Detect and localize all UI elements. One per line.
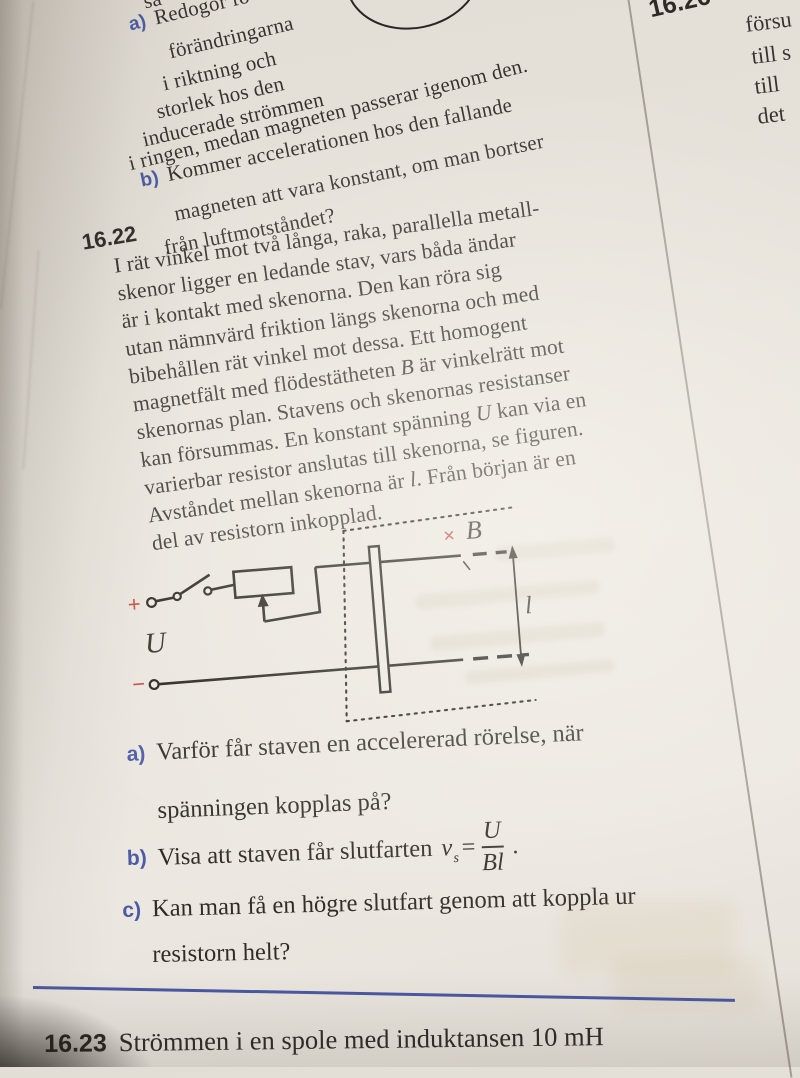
- adjacent-line-fragment: det: [756, 101, 786, 130]
- problem-16-23-number: 16.23: [44, 1029, 107, 1058]
- v-subscript: s: [453, 851, 459, 866]
- question-a-line-2: spänningen kopplas på?: [157, 788, 392, 825]
- paper-crease: [22, 250, 39, 470]
- terminal-circle: [149, 680, 158, 689]
- line-text: resistorn helt?: [152, 938, 291, 968]
- line-text: Visa att staven får slutfarten: [157, 835, 433, 872]
- textbook-page-photo: { "colors": {"accent_blue": "#4b5ba6", "…: [0, 0, 800, 1067]
- fragment-text: till: [753, 71, 781, 99]
- previous-figure-ring-fragment: [336, 0, 490, 41]
- adjacent-line-fragment: till: [753, 71, 781, 100]
- formula-fraction: U Bl: [481, 818, 505, 876]
- fragment-text: försu: [744, 6, 793, 36]
- item-b-label: b): [139, 167, 161, 191]
- minus-terminal-label: −: [131, 671, 146, 697]
- terminal-circle: [147, 598, 156, 607]
- fragment-text: till s: [750, 39, 792, 69]
- sentence-period: .: [512, 832, 519, 860]
- circuit-diagram: + − U × B l: [104, 467, 662, 750]
- field-cross-icon: ×: [442, 523, 456, 548]
- resistor-box: [233, 567, 293, 598]
- formula-velocity: vs: [441, 834, 458, 863]
- voltage-label: U: [144, 626, 169, 660]
- fragment-text: det: [756, 101, 786, 129]
- field-label: B: [465, 515, 483, 545]
- rail-tick-mark: [463, 561, 470, 570]
- line-text: spänningen kopplas på?: [157, 788, 392, 824]
- top-rail: [315, 556, 461, 568]
- question-b-label: b): [127, 846, 148, 871]
- item-a-label: a): [127, 11, 149, 35]
- plus-terminal-label: +: [127, 591, 142, 617]
- adjacent-line-fragment: försu: [744, 6, 793, 37]
- top-rail-dashed-end: [473, 552, 507, 555]
- problem-16-23-line: 16.23Strömmen i en spole med induktansen…: [44, 1021, 604, 1059]
- paper-crease: [0, 1, 34, 310]
- adjacent-problem-number: 16.26: [646, 0, 713, 24]
- wire-to-resistor: [211, 585, 234, 590]
- question-a-label: a): [126, 742, 146, 766]
- question-c-line-2: resistorn helt?: [152, 938, 291, 969]
- fraction-numerator: U: [483, 818, 502, 844]
- v-symbol: v: [441, 834, 453, 861]
- show-through-patch: [615, 958, 760, 1010]
- question-c-label: c): [122, 899, 141, 922]
- adjacent-line-fragment: till s: [750, 39, 792, 70]
- circuit-diagram-svg: + − U × B l: [104, 467, 662, 750]
- switch-contact-circle: [204, 587, 212, 595]
- question-c-line-1: c)Kan man få en högre slutfart genom att…: [122, 883, 636, 924]
- question-b-line: b) Visa att staven får slutfarten vs = U…: [126, 817, 519, 888]
- equals-sign: =: [461, 833, 476, 861]
- length-label: l: [524, 592, 533, 619]
- fraction-denominator: Bl: [482, 849, 505, 875]
- length-dimension-arrow: [508, 545, 527, 667]
- switch-link: [156, 598, 173, 601]
- bottom-rail: [158, 660, 463, 685]
- number-text: 16.26: [646, 0, 713, 23]
- field-region-dotted-border: [331, 507, 536, 722]
- problem-16-23-text: Strömmen i en spole med induktansen 10 m…: [119, 1021, 604, 1057]
- sliding-rod: [369, 546, 391, 692]
